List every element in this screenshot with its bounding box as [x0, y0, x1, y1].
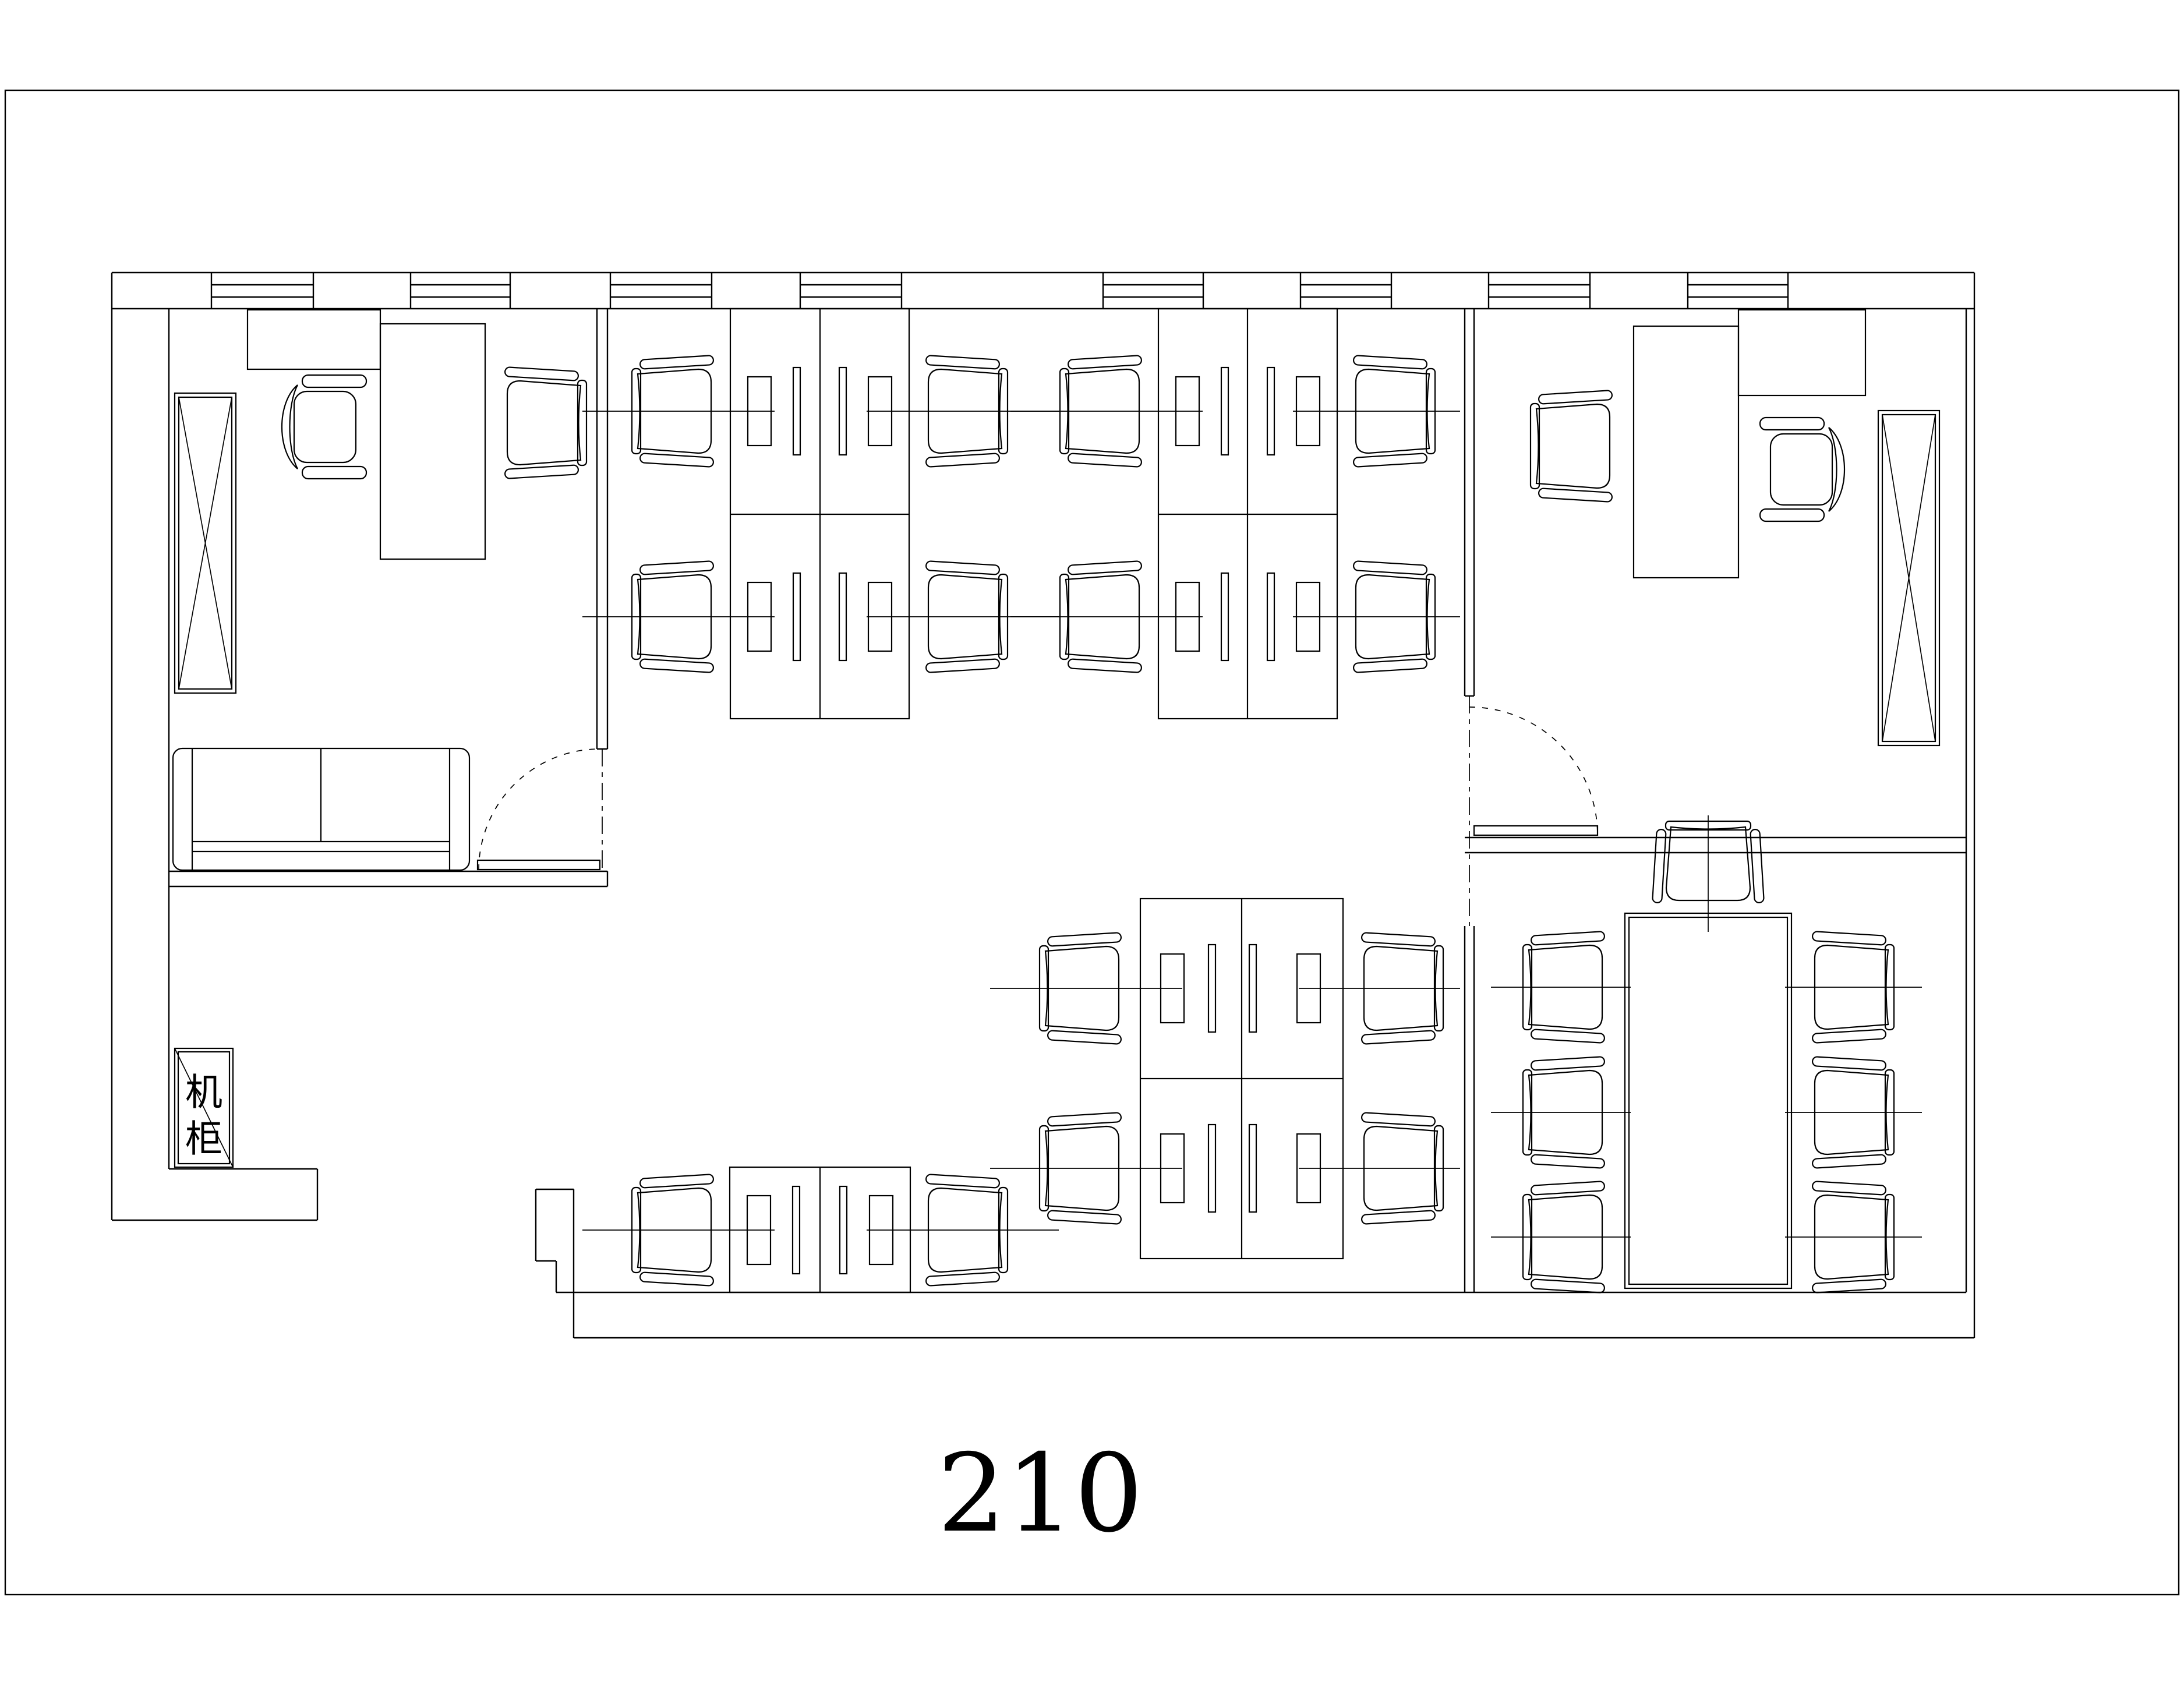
meeting-room [1491, 815, 1922, 1293]
manager-desk [1634, 326, 1738, 578]
desk-island-2 [1010, 309, 1460, 719]
visitor-chair [1531, 390, 1612, 502]
sheet-border [5, 90, 2179, 1595]
desk-island-4 [990, 899, 1460, 1259]
window-icon [1489, 273, 1590, 309]
desk-return [1738, 310, 1865, 395]
right-office [1531, 310, 1939, 745]
sofa [173, 748, 469, 870]
interior-walls [169, 309, 1966, 1292]
window-band [211, 273, 1788, 309]
window-icon [800, 273, 902, 309]
desk-island-3 [582, 1167, 1059, 1292]
credenza [248, 310, 380, 369]
wardrobe-cabinet [1878, 411, 1939, 745]
executive-chair [282, 375, 366, 479]
floor-plan-210: 机 柜 [0, 0, 2184, 1689]
desk-island-1 [582, 309, 1059, 719]
manager-desk [380, 324, 485, 559]
window-icon [211, 273, 313, 309]
window-icon [1688, 273, 1788, 309]
wardrobe-cabinet [175, 393, 236, 693]
server-cabinet-label-char2: 柜 [185, 1118, 222, 1161]
server-cabinet-label-char1: 机 [185, 1072, 222, 1115]
door-swing-arc [479, 749, 600, 870]
room-number-label: 210 [937, 1430, 1143, 1556]
door-leaf [478, 860, 600, 870]
window-icon [1300, 273, 1391, 309]
exterior-walls [112, 273, 1974, 1338]
window-icon [610, 273, 712, 309]
window-icon [411, 273, 510, 309]
right-office-door [1469, 696, 1598, 926]
left-office [173, 310, 586, 870]
drawing-sheet: 机 柜 [0, 0, 2184, 1689]
visitor-chair [505, 367, 586, 479]
left-office-door [478, 749, 602, 871]
door-leaf [1474, 826, 1598, 835]
meeting-table [1625, 913, 1791, 1288]
executive-chair [1760, 418, 1844, 521]
window-icon [1103, 273, 1203, 309]
door-swing-arc [1469, 707, 1598, 835]
server-cabinet: 机 柜 [175, 1048, 233, 1167]
